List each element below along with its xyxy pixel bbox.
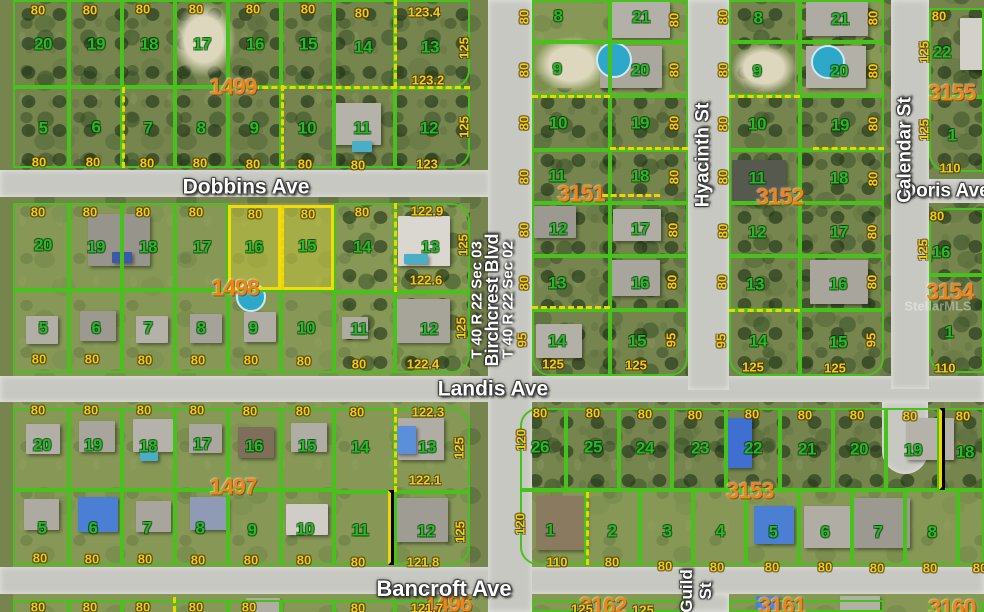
parcel-boundary <box>69 408 122 490</box>
parcel-boundary <box>395 600 470 612</box>
parcel-boundary <box>886 408 939 490</box>
highlight-lot-line <box>394 0 397 88</box>
parcel-boundary <box>729 0 800 42</box>
parcel-boundary <box>122 203 175 290</box>
parcel-boundary <box>69 490 122 565</box>
parcel-boundary <box>334 88 395 168</box>
parcel-boundary <box>958 490 984 565</box>
parcel-boundary <box>746 490 799 565</box>
parcel-boundary <box>122 408 175 490</box>
parcel-boundary <box>729 42 800 96</box>
parcel-boundary <box>610 600 688 612</box>
parcel-boundary <box>800 0 884 42</box>
parcel-boundary <box>566 408 619 490</box>
parcel-boundary <box>395 292 470 373</box>
parcel-boundary <box>334 408 395 492</box>
parcel-boundary <box>122 490 175 565</box>
highlight-lot-line <box>281 85 284 168</box>
parcel-boundary <box>281 87 334 168</box>
parcel-boundary <box>281 490 334 565</box>
road-hyacinth-st <box>688 0 729 390</box>
highlight-lot-line <box>122 87 125 168</box>
parcel-boundary <box>729 150 800 203</box>
parcel-boundary <box>395 203 470 292</box>
parcel-boundary <box>13 0 69 87</box>
parcel-boundary <box>729 600 800 612</box>
parcel-boundary <box>532 42 610 96</box>
parcel-boundary <box>520 490 586 565</box>
parcel-boundary <box>334 292 395 373</box>
parcel-boundary <box>800 150 884 203</box>
parcel-boundary <box>228 0 281 87</box>
parcel-boundary <box>122 290 175 373</box>
parcel-boundary <box>395 492 470 565</box>
parcel-boundary <box>122 87 175 168</box>
parcel-boundary <box>175 600 228 612</box>
parcel-boundary <box>69 290 122 373</box>
parcel-boundary <box>122 600 175 612</box>
parcel-boundary <box>228 490 281 565</box>
parcel-boundary <box>13 203 69 290</box>
parcel-boundary <box>939 408 984 490</box>
parcel-boundary <box>729 256 800 310</box>
highlight-lot-line <box>394 203 397 292</box>
parcel-boundary <box>69 600 122 612</box>
parcel-boundary <box>228 87 281 168</box>
parcel-boundary <box>929 208 984 275</box>
parcel-boundary <box>729 96 800 150</box>
parcel-boundary <box>800 96 884 150</box>
parcel-boundary <box>395 0 470 88</box>
parcel-boundary <box>726 408 780 490</box>
highlight-lot-line <box>939 408 945 490</box>
parcel-boundary <box>800 310 884 376</box>
parcel-boundary <box>532 256 610 310</box>
parcel-boundary <box>281 0 334 87</box>
highlight-lot-line <box>729 95 800 98</box>
section-township-label: T 40 R 22 Sec 03 <box>470 241 485 359</box>
parcel-boundary <box>532 96 610 150</box>
parcel-boundary <box>693 490 746 565</box>
highlight-lot-line <box>610 147 688 150</box>
highlight-lot-line <box>253 86 470 89</box>
parcel-boundary <box>532 0 610 42</box>
parcel-boundary <box>800 600 884 612</box>
parcel-boundary <box>228 600 281 612</box>
highlight-lot-line <box>394 408 397 492</box>
parcel-boundary <box>610 310 688 376</box>
highlight-lot-line <box>729 309 800 312</box>
parcel-boundary <box>640 490 693 565</box>
highlight-lot-line <box>532 95 610 98</box>
parcel-boundary <box>610 42 688 96</box>
parcel-boundary <box>69 87 122 168</box>
highlight-lot-line <box>532 306 610 309</box>
parcel-boundary <box>395 408 470 492</box>
parcel-boundary <box>334 203 395 292</box>
parcel-boundary <box>281 600 334 612</box>
parcel-map[interactable]: 2019181716151413567891011121499201918171… <box>0 0 984 612</box>
parcel-boundary <box>122 0 175 87</box>
road-guild-st <box>688 594 729 612</box>
highlight-lot-line <box>388 490 394 565</box>
parcel-boundary <box>532 310 610 376</box>
parcel-boundary <box>610 256 688 310</box>
parcel-boundary <box>610 203 688 256</box>
parcel-boundary <box>13 408 69 490</box>
parcel-boundary <box>532 150 610 203</box>
parcel-boundary <box>800 256 884 310</box>
parcel-boundary <box>619 408 672 490</box>
parcel-boundary <box>729 203 800 256</box>
road-dobbins-ave <box>0 170 490 197</box>
parcel-boundary <box>175 0 228 87</box>
parcel-boundary <box>929 8 984 97</box>
parcel-boundary <box>929 97 984 172</box>
parcel-boundary <box>672 408 726 490</box>
parcel-boundary <box>281 408 334 490</box>
parcel-boundary <box>228 408 281 490</box>
parcel-boundary <box>586 490 640 565</box>
parcel-boundary <box>395 88 470 168</box>
parcel-boundary <box>175 490 228 565</box>
parcel-boundary <box>334 600 395 612</box>
parcel-boundary <box>175 290 228 373</box>
parcel-boundary <box>929 602 984 612</box>
parcel-boundary <box>334 492 395 565</box>
parcel-boundary <box>800 203 884 256</box>
parcel-boundary <box>520 408 566 490</box>
parcel-boundary <box>799 490 852 565</box>
parcel-boundary <box>13 490 69 565</box>
parcel-boundary <box>334 0 395 88</box>
highlight-lot-line <box>813 147 884 150</box>
parcel-boundary <box>175 87 228 168</box>
road-doris-ave <box>928 179 984 203</box>
parcel-boundary <box>175 203 228 290</box>
parcel-boundary <box>69 0 122 87</box>
parcel-boundary <box>780 408 833 490</box>
highlight-lot-line <box>586 492 589 565</box>
parcel-boundary <box>13 600 69 612</box>
parcel-boundary <box>532 203 610 256</box>
parcel-boundary <box>281 290 334 373</box>
parcel-boundary <box>929 275 984 373</box>
parcel-boundary <box>13 290 69 373</box>
parcel-boundary <box>532 600 610 612</box>
parcel-boundary <box>610 0 688 42</box>
parcel-boundary <box>610 96 688 150</box>
parcel-boundary <box>69 203 122 290</box>
highlight-lot-line <box>173 597 176 612</box>
highlight-lot-line <box>602 194 660 197</box>
parcel-boundary <box>729 310 800 376</box>
road-calendar-st <box>891 0 929 389</box>
parcel-boundary <box>833 408 886 490</box>
parcel-boundary <box>228 290 281 373</box>
parcel-boundary <box>905 490 958 565</box>
parcel-boundary <box>800 42 884 96</box>
parcel-boundary <box>13 87 69 168</box>
parcel-boundary <box>175 408 228 490</box>
highlight-lot-line <box>281 205 284 290</box>
parcel-boundary <box>852 490 905 565</box>
